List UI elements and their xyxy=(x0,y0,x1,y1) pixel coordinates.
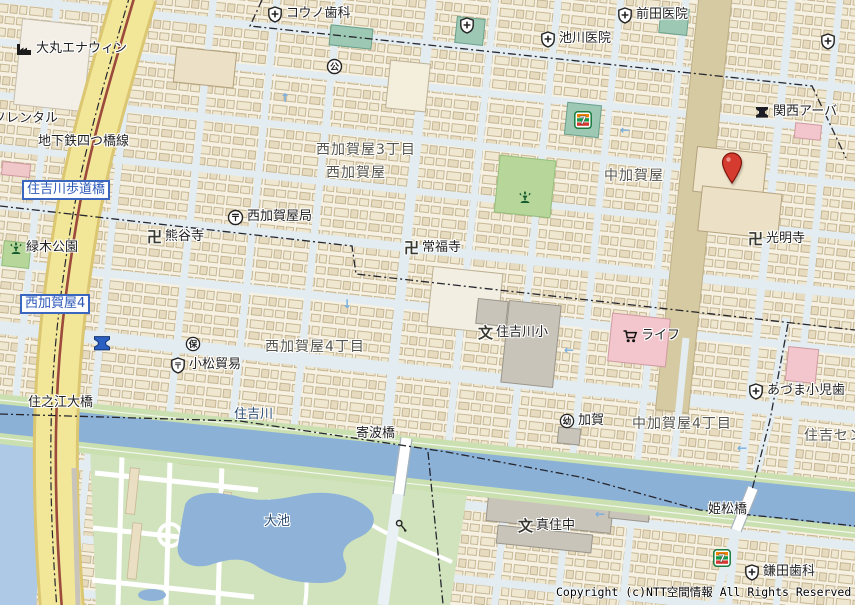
label-oike-pond: 大池 xyxy=(264,515,290,529)
poi-maeda-clinic: 前田医院 xyxy=(617,7,688,24)
label-himematsu-bridge: 姫松橋 xyxy=(708,503,747,517)
poi-label: 真住中 xyxy=(536,519,575,533)
company-icon: 〒 xyxy=(170,357,186,374)
poi-label: 緑木公園 xyxy=(26,241,78,255)
location-pin[interactable] xyxy=(720,152,744,188)
oneway-arrow-icon: ↑ xyxy=(280,92,290,104)
hospital-icon xyxy=(267,6,283,23)
poi-azuma-pediatric-dental: あづま小児歯 xyxy=(748,383,845,400)
poi-label: 熊谷寺 xyxy=(165,230,204,244)
bank-icon xyxy=(754,105,770,120)
svg-text:7: 7 xyxy=(579,114,587,127)
hospital-icon xyxy=(820,33,836,50)
clinic-marker xyxy=(820,33,836,50)
poi-daimaru-enawin: 大丸エナウィン xyxy=(15,42,127,56)
poi-komyoji-temple: 卍 光明寺 xyxy=(748,232,805,247)
oneway-arrow-icon: ← xyxy=(737,442,747,454)
oneway-arrow-icon: ← xyxy=(620,124,630,136)
poi-label: 西加賀屋局 xyxy=(247,210,312,224)
temple-icon: 卍 xyxy=(404,241,419,256)
poi-nishikagaya-post-office: 〒 西加賀屋局 xyxy=(227,209,312,226)
poi-masumi-junior-high: 文 真住中 xyxy=(518,519,575,534)
hospital-icon xyxy=(744,564,760,581)
bank-icon-blue xyxy=(92,334,112,353)
seven-eleven-icon: 7 xyxy=(713,549,731,567)
label-rental: ソレンタル xyxy=(0,112,58,126)
label-nishikagaya-4chome: 西加賀屋4丁目 xyxy=(265,340,365,355)
seven-eleven-store: 7 xyxy=(713,549,731,567)
poi-label: 池川医院 xyxy=(559,32,611,46)
poi-kamada-dental: 鎌田歯科 xyxy=(744,564,815,581)
map-canvas[interactable]: 大丸エナウィン ソレンタル 地下鉄四つ橋線 住吉川歩道橋 コウノ歯科 公 西加賀… xyxy=(0,0,855,605)
bank-branch xyxy=(92,334,112,353)
poi-label: 関西アーバ xyxy=(773,105,837,119)
label-nishikagaya: 西加賀屋 xyxy=(326,166,386,181)
poi-label: ライフ xyxy=(641,329,680,343)
poi-life-supermarket: ライフ xyxy=(622,329,680,344)
nursery-icon: 保 xyxy=(185,336,201,352)
post-office-icon: 〒 xyxy=(227,209,244,226)
poi-label: あづま小児歯 xyxy=(767,384,845,398)
poi-jofukuji-temple: 卍 常福寺 xyxy=(404,241,461,256)
poi-sumiyoshigawa-elementary: 文 住吉川小 xyxy=(478,326,548,341)
hospital-icon xyxy=(540,31,556,48)
park-icon: 公 xyxy=(326,58,343,75)
oneway-arrow-icon: ← xyxy=(564,344,574,356)
poi-kumagaiji-temple: 卍 熊谷寺 xyxy=(147,230,204,245)
svg-text:〒: 〒 xyxy=(231,213,241,224)
poi-label: 小松貿易 xyxy=(189,358,241,372)
fountain-icon xyxy=(518,190,532,204)
label-nakakagaya: 中加賀屋 xyxy=(604,169,664,184)
temple-icon: 卍 xyxy=(748,232,763,247)
label-sumiyoshigawa-river: 住吉川 xyxy=(234,408,273,422)
nursery-school: 保 xyxy=(185,336,201,352)
school-icon: 文 xyxy=(518,519,533,534)
svg-text:公: 公 xyxy=(330,62,339,73)
poi-komatsu-trading: 〒 小松貿易 xyxy=(170,357,241,374)
label-nishikagaya-3chome: 西加賀屋3丁目 xyxy=(316,143,416,158)
label-subway-yotsubashi-line: 地下鉄四つ橋線 xyxy=(38,135,129,149)
poi-label: 大丸エナウィン xyxy=(36,42,127,56)
poi-ikegawa-clinic: 池川医院 xyxy=(540,31,611,48)
oneway-arrow-icon: ← xyxy=(595,508,605,520)
cart-icon xyxy=(622,329,638,344)
kindergarten-icon: 幼 xyxy=(559,413,575,429)
factory-icon xyxy=(15,42,33,56)
label-nishikagaya-4: 西加賀屋4 xyxy=(20,294,90,314)
hospital-icon xyxy=(617,7,633,24)
poi-midoriki-park: 緑木公園 xyxy=(9,241,78,255)
seven-eleven-store: 7 xyxy=(574,111,592,129)
poi-kaga-kindergarten: 幼 加賀 xyxy=(559,413,604,429)
oneway-arrow-icon: ↓ xyxy=(342,298,352,310)
school-icon: 文 xyxy=(478,326,493,341)
poi-label: 常福寺 xyxy=(422,241,461,255)
poi-label: 光明寺 xyxy=(766,232,805,246)
monument xyxy=(395,519,408,533)
poi-label: 鎌田歯科 xyxy=(763,565,815,579)
poi-label: 住吉川小 xyxy=(496,326,548,340)
statue-icon xyxy=(395,519,408,533)
poi-kouno-dental: コウノ歯科 xyxy=(267,6,350,23)
clinic-marker xyxy=(459,17,475,34)
seven-eleven-icon: 7 xyxy=(574,111,592,129)
temple-icon: 卍 xyxy=(147,230,162,245)
label-suminoe-ohashi-bridge: 住之江大橋 xyxy=(28,396,93,410)
park-symbol: 公 xyxy=(326,58,343,75)
svg-text:保: 保 xyxy=(188,339,198,350)
hospital-icon xyxy=(748,383,764,400)
poi-label: 前田医院 xyxy=(636,8,688,22)
poi-label: 加賀 xyxy=(578,414,604,428)
fountain-icon xyxy=(9,241,23,255)
label-yorinami-bridge: 寄波橋 xyxy=(356,427,395,441)
park-fountain xyxy=(518,190,532,204)
svg-text:〒: 〒 xyxy=(174,362,182,371)
hospital-icon xyxy=(459,17,475,34)
label-sumiyoshigawa-hodokyo: 住吉川歩道橋 xyxy=(22,180,110,200)
svg-text:7: 7 xyxy=(718,552,726,565)
label-nakakagaya-4chome: 中加賀屋4丁目 xyxy=(632,417,732,432)
location-pin-icon xyxy=(720,152,744,184)
copyright: Copyright (c)NTT空間情報 All Rights Reserved xyxy=(556,584,851,600)
svg-text:幼: 幼 xyxy=(563,416,572,427)
poi-kansai-urban-bank: 関西アーバ xyxy=(754,105,837,120)
label-sumiyoshi-center: 住吉セン xyxy=(804,429,855,444)
poi-label: コウノ歯科 xyxy=(286,7,350,21)
